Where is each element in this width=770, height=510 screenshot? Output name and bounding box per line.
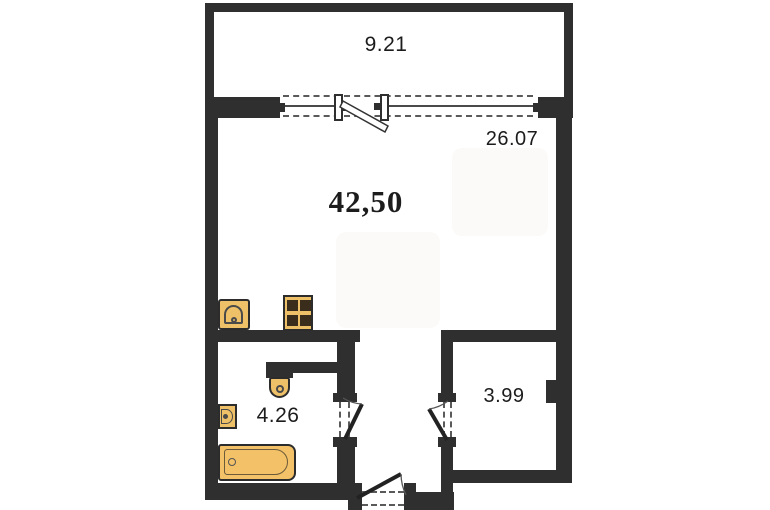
total-area-label: 42,50 bbox=[306, 184, 426, 220]
bathroom-area-label: 4.26 bbox=[242, 404, 314, 428]
balcony-door-hinge-left bbox=[343, 104, 350, 111]
toilet-bowl bbox=[276, 385, 284, 393]
storage-left-wall-upper bbox=[441, 330, 453, 398]
storage-top-wall bbox=[441, 330, 572, 342]
stove-burner bbox=[287, 315, 298, 326]
balcony-right-wall bbox=[564, 3, 573, 98]
kitchen-wall bbox=[205, 330, 360, 342]
window-glass-line-left bbox=[283, 105, 334, 107]
bathroom-door-dash bbox=[339, 402, 341, 437]
window-pier-left bbox=[205, 97, 280, 118]
window-dashed-line-top bbox=[283, 95, 533, 97]
living-area-label: 26.07 bbox=[476, 128, 548, 151]
kitchen-stove-icon bbox=[283, 295, 313, 331]
right-outer-wall bbox=[556, 118, 572, 483]
ghost-patch bbox=[452, 148, 548, 236]
kitchen-sink-drain bbox=[231, 317, 237, 323]
entry-door-leaf bbox=[357, 474, 401, 498]
ghost-patch bbox=[336, 232, 440, 328]
storage-door-swing-arc bbox=[429, 401, 448, 409]
toilet-icon bbox=[269, 377, 290, 398]
bathtub-icon bbox=[218, 444, 296, 481]
bathroom-wall-lower bbox=[337, 442, 355, 483]
bathroom-bottom-wall bbox=[205, 483, 355, 500]
bathroom-door-jamb-top bbox=[333, 393, 357, 402]
window-anchor-right bbox=[533, 103, 542, 112]
window-pier-right bbox=[538, 97, 573, 118]
left-outer-wall bbox=[205, 118, 218, 500]
balcony-door-hinge-right bbox=[374, 103, 381, 110]
storage-bottom-wall bbox=[441, 470, 572, 483]
kitchen-sink-icon bbox=[218, 299, 250, 330]
bathroom-door-dash bbox=[348, 402, 350, 437]
entry-door-dash bbox=[362, 491, 404, 493]
stove-burner bbox=[287, 300, 298, 311]
floor-plan: 9.21 26.07 42,50 4.26 3.99 bbox=[0, 0, 770, 510]
balcony-left-wall bbox=[205, 3, 214, 98]
storage-door-jamb-bottom bbox=[438, 437, 456, 447]
entry-jamb-left bbox=[348, 483, 362, 510]
window-dashed-line-bottom bbox=[283, 115, 533, 117]
balcony-area-label: 9.21 bbox=[350, 33, 422, 57]
storage-area-label: 3.99 bbox=[468, 385, 540, 408]
storage-door-jamb-top bbox=[438, 393, 456, 402]
bathtub-drain bbox=[228, 458, 236, 466]
storage-door-dash bbox=[450, 402, 452, 437]
stove-burner bbox=[300, 300, 311, 311]
bathroom-door-jamb-bottom bbox=[333, 437, 357, 447]
wall-niche-pilaster bbox=[546, 380, 558, 403]
entry-door-dash bbox=[362, 504, 404, 506]
window-anchor-left bbox=[276, 103, 285, 112]
balcony-door-frame-right bbox=[380, 94, 389, 121]
balcony-door-frame-left bbox=[334, 94, 343, 121]
stove-burner bbox=[300, 315, 311, 326]
balcony-top-wall bbox=[205, 3, 573, 12]
wash-basin-drain bbox=[223, 414, 228, 419]
window-glass-line-right bbox=[389, 105, 533, 107]
storage-door-dash bbox=[443, 402, 445, 437]
wash-basin-icon bbox=[218, 404, 237, 429]
